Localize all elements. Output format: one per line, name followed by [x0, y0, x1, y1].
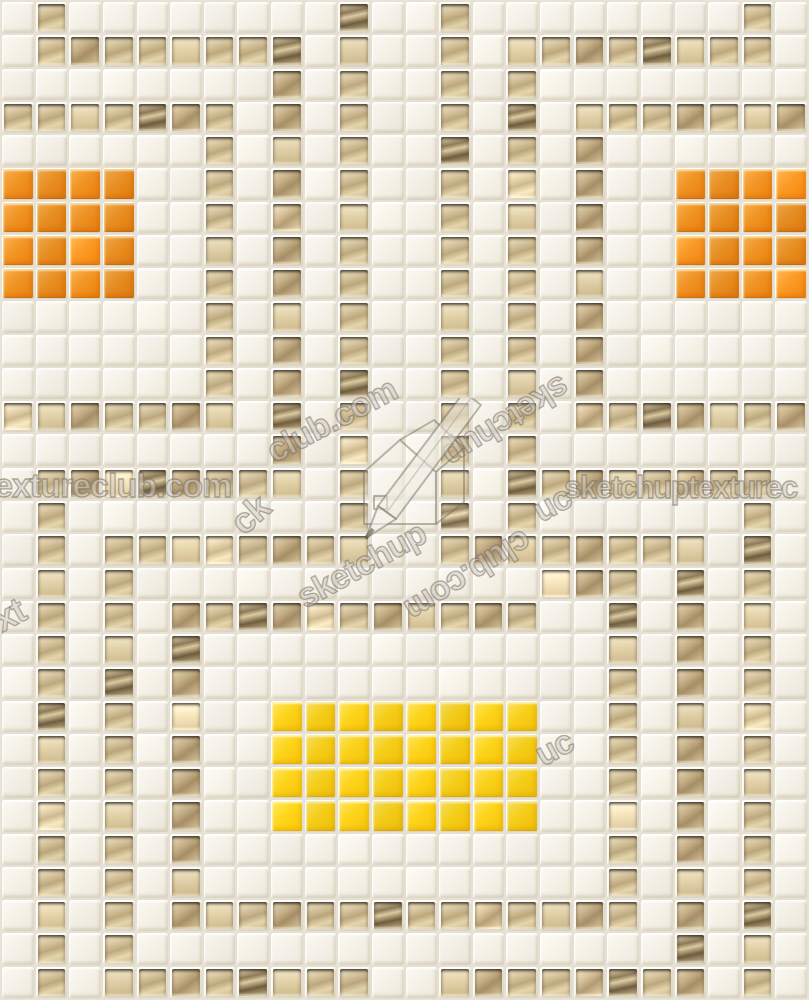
- tile-gold-metallic: [338, 69, 370, 100]
- tile-white: [641, 568, 673, 599]
- tile-white: [540, 667, 572, 698]
- tile-white: [2, 834, 34, 865]
- tile-gold-metallic: [540, 568, 572, 599]
- tile-gold-metallic: [675, 534, 707, 565]
- tile-white: [372, 135, 404, 166]
- tile-gold-metallic: [137, 967, 169, 998]
- tile-orange: [708, 268, 740, 299]
- tile-white: [170, 434, 202, 465]
- tile-white: [708, 434, 740, 465]
- tile-gold-metallic: [439, 967, 471, 998]
- tile-white: [2, 767, 34, 798]
- tile-gold-metallic: [103, 601, 135, 632]
- tile-gold-metallic: [103, 35, 135, 66]
- tile-gold-metallic: [271, 900, 303, 931]
- tile-white: [775, 834, 807, 865]
- tile-gold-metallic: [540, 967, 572, 998]
- tile-gold-metallic: [439, 102, 471, 133]
- tile-white: [305, 69, 337, 100]
- tile-gold-metallic: [170, 401, 202, 432]
- tile-orange: [675, 202, 707, 233]
- tile-white: [36, 135, 68, 166]
- tile-orange: [708, 202, 740, 233]
- tile-white: [69, 368, 101, 399]
- tile-gold-metallic: [2, 102, 34, 133]
- tile-white: [506, 834, 538, 865]
- tile-orange: [103, 268, 135, 299]
- tile-white: [372, 202, 404, 233]
- tile-yellow: [372, 701, 404, 732]
- tile-white: [607, 2, 639, 33]
- tile-gold-metallic: [204, 368, 236, 399]
- tile-white: [473, 2, 505, 33]
- tile-white: [641, 701, 673, 732]
- tile-gold-metallic: [675, 601, 707, 632]
- tile-gold-metallic: [338, 268, 370, 299]
- tile-orange: [36, 268, 68, 299]
- tile-white: [574, 800, 606, 831]
- tile-white: [675, 301, 707, 332]
- tile-white: [406, 301, 438, 332]
- tile-white: [137, 667, 169, 698]
- tile-gold-metallic: [271, 69, 303, 100]
- tile-gold-metallic: [540, 534, 572, 565]
- tile-gold-metallic: [36, 501, 68, 532]
- tile-white: [372, 534, 404, 565]
- tile-yellow: [271, 767, 303, 798]
- tile-white: [406, 102, 438, 133]
- tile-white: [305, 135, 337, 166]
- tile-yellow: [372, 734, 404, 765]
- tile-white: [237, 202, 269, 233]
- tile-gold-metallic: [775, 401, 807, 432]
- tile-gold-metallic: [574, 335, 606, 366]
- tile-gold-metallic: [439, 501, 471, 532]
- tile-white: [540, 933, 572, 964]
- tile-gold-metallic: [372, 601, 404, 632]
- tile-white: [204, 867, 236, 898]
- tile-gold-metallic: [36, 867, 68, 898]
- tile-white: [137, 867, 169, 898]
- tile-white: [775, 734, 807, 765]
- tile-white: [271, 634, 303, 665]
- tile-white: [170, 568, 202, 599]
- tile-gold-metallic: [607, 967, 639, 998]
- tile-gold-metallic: [338, 967, 370, 998]
- tile-gold-metallic: [742, 967, 774, 998]
- tile-gold-metallic: [574, 168, 606, 199]
- tile-white: [775, 69, 807, 100]
- tile-gold-metallic: [506, 434, 538, 465]
- tile-white: [36, 368, 68, 399]
- tile-white: [69, 534, 101, 565]
- tile-white: [439, 634, 471, 665]
- tile-white: [641, 634, 673, 665]
- tile-white: [137, 335, 169, 366]
- tile-yellow: [506, 734, 538, 765]
- tile-gold-metallic: [406, 900, 438, 931]
- tile-white: [237, 501, 269, 532]
- tile-white: [137, 900, 169, 931]
- tile-white: [641, 601, 673, 632]
- tile-white: [574, 501, 606, 532]
- tile-gold-metallic: [170, 701, 202, 732]
- tile-gold-metallic: [439, 401, 471, 432]
- tile-gold-metallic: [372, 900, 404, 931]
- tile-white: [675, 501, 707, 532]
- tile-gold-metallic: [271, 135, 303, 166]
- tile-orange: [2, 268, 34, 299]
- tile-white: [305, 568, 337, 599]
- tile-white: [2, 35, 34, 66]
- tile-gold-metallic: [36, 967, 68, 998]
- tile-white: [137, 933, 169, 964]
- tile-yellow: [406, 734, 438, 765]
- tile-white: [607, 301, 639, 332]
- tile-white: [372, 568, 404, 599]
- tile-gold-metallic: [36, 634, 68, 665]
- tile-gold-metallic: [742, 601, 774, 632]
- tile-gold-metallic: [675, 568, 707, 599]
- tile-gold-metallic: [36, 734, 68, 765]
- tile-white: [641, 202, 673, 233]
- tile-gold-metallic: [338, 35, 370, 66]
- tile-gold-metallic: [473, 534, 505, 565]
- tile-white: [742, 434, 774, 465]
- tile-white: [540, 701, 572, 732]
- tile-white: [69, 568, 101, 599]
- tile-white: [406, 168, 438, 199]
- tile-gold-metallic: [237, 601, 269, 632]
- tile-white: [69, 667, 101, 698]
- tile-white: [574, 634, 606, 665]
- tile-white: [237, 102, 269, 133]
- tile-white: [540, 301, 572, 332]
- tile-white: [641, 168, 673, 199]
- tile-white: [473, 235, 505, 266]
- tile-gold-metallic: [439, 202, 471, 233]
- tile-yellow: [473, 701, 505, 732]
- tile-white: [305, 301, 337, 332]
- tile-white: [2, 900, 34, 931]
- tile-yellow: [439, 734, 471, 765]
- tile-white: [305, 368, 337, 399]
- tile-yellow: [305, 800, 337, 831]
- tile-gold-metallic: [506, 202, 538, 233]
- tile-white: [36, 69, 68, 100]
- tile-gold-metallic: [540, 900, 572, 931]
- tile-gold-metallic: [170, 767, 202, 798]
- tile-white: [271, 568, 303, 599]
- tile-gold-metallic: [305, 534, 337, 565]
- tile-white: [305, 667, 337, 698]
- tile-white: [708, 701, 740, 732]
- tile-white: [69, 800, 101, 831]
- tile-white: [170, 69, 202, 100]
- tile-white: [237, 401, 269, 432]
- tile-yellow: [506, 800, 538, 831]
- tile-gold-metallic: [607, 634, 639, 665]
- tile-gold-metallic: [237, 534, 269, 565]
- tile-gold-metallic: [506, 102, 538, 133]
- tile-white: [372, 368, 404, 399]
- tile-gold-metallic: [742, 468, 774, 499]
- tile-white: [69, 335, 101, 366]
- tile-white: [775, 967, 807, 998]
- tile-white: [506, 568, 538, 599]
- tile-white: [204, 634, 236, 665]
- tile-gold-metallic: [742, 401, 774, 432]
- tile-white: [708, 135, 740, 166]
- tile-white: [69, 301, 101, 332]
- tile-gold-metallic: [271, 534, 303, 565]
- tile-gold-metallic: [137, 401, 169, 432]
- tile-white: [137, 568, 169, 599]
- tile-white: [372, 35, 404, 66]
- tile-yellow: [439, 701, 471, 732]
- tile-white: [271, 667, 303, 698]
- tile-white: [775, 468, 807, 499]
- tile-white: [69, 834, 101, 865]
- tile-gold-metallic: [675, 767, 707, 798]
- tile-yellow: [439, 800, 471, 831]
- tile-white: [237, 634, 269, 665]
- tile-white: [69, 2, 101, 33]
- tile-white: [237, 734, 269, 765]
- tile-gold-metallic: [36, 401, 68, 432]
- tile-gold-metallic: [204, 35, 236, 66]
- tile-gold-metallic: [607, 401, 639, 432]
- tile-gold-metallic: [439, 135, 471, 166]
- tile-white: [406, 667, 438, 698]
- tile-white: [237, 368, 269, 399]
- tile-white: [607, 434, 639, 465]
- tile-white: [36, 335, 68, 366]
- tile-white: [69, 601, 101, 632]
- tile-gold-metallic: [506, 368, 538, 399]
- tile-white: [675, 368, 707, 399]
- tile-orange: [708, 235, 740, 266]
- tile-white: [372, 268, 404, 299]
- tile-gold-metallic: [439, 468, 471, 499]
- tile-white: [708, 335, 740, 366]
- tile-white: [36, 301, 68, 332]
- tile-gold-metallic: [775, 102, 807, 133]
- tile-gold-metallic: [675, 867, 707, 898]
- tile-white: [2, 667, 34, 698]
- tile-white: [237, 168, 269, 199]
- tile-white: [170, 368, 202, 399]
- tile-gold-metallic: [36, 800, 68, 831]
- tile-gold-metallic: [607, 601, 639, 632]
- tile-white: [439, 867, 471, 898]
- tile-white: [406, 202, 438, 233]
- tile-gold-metallic: [338, 368, 370, 399]
- tile-white: [204, 767, 236, 798]
- tile-white: [742, 301, 774, 332]
- tile-white: [641, 235, 673, 266]
- tile-gold-metallic: [675, 401, 707, 432]
- tile-white: [406, 368, 438, 399]
- tile-white: [708, 634, 740, 665]
- tile-white: [574, 69, 606, 100]
- tile-gold-metallic: [338, 168, 370, 199]
- tile-white: [170, 933, 202, 964]
- tile-gold-metallic: [36, 601, 68, 632]
- tile-white: [607, 168, 639, 199]
- tile-orange: [69, 202, 101, 233]
- tile-orange: [2, 235, 34, 266]
- tile-white: [540, 368, 572, 399]
- tile-white: [103, 301, 135, 332]
- tile-white: [271, 867, 303, 898]
- tile-gold-metallic: [439, 2, 471, 33]
- tile-orange: [103, 168, 135, 199]
- tile-white: [103, 135, 135, 166]
- tile-gold-metallic: [641, 102, 673, 133]
- tile-gold-metallic: [204, 202, 236, 233]
- tile-white: [406, 268, 438, 299]
- tile-gold-metallic: [675, 102, 707, 133]
- tile-gold-metallic: [675, 900, 707, 931]
- tile-gold-metallic: [607, 35, 639, 66]
- tile-white: [708, 734, 740, 765]
- tile-gold-metallic: [204, 268, 236, 299]
- tile-white: [540, 800, 572, 831]
- tile-white: [137, 301, 169, 332]
- tile-white: [675, 69, 707, 100]
- tile-gold-metallic: [675, 834, 707, 865]
- tile-gold-metallic: [607, 102, 639, 133]
- tile-white: [641, 933, 673, 964]
- tile-white: [338, 667, 370, 698]
- tile-gold-metallic: [506, 35, 538, 66]
- tile-gold-metallic: [338, 434, 370, 465]
- tile-gold-metallic: [742, 667, 774, 698]
- tile-white: [372, 69, 404, 100]
- tile-gold-metallic: [237, 967, 269, 998]
- tile-white: [775, 701, 807, 732]
- tile-white: [708, 667, 740, 698]
- tile-white: [2, 534, 34, 565]
- tile-gold-metallic: [204, 301, 236, 332]
- tile-gold-metallic: [742, 834, 774, 865]
- tile-white: [708, 867, 740, 898]
- tile-white: [574, 601, 606, 632]
- tile-orange: [103, 235, 135, 266]
- tile-white: [641, 2, 673, 33]
- tile-white: [170, 335, 202, 366]
- tile-white: [69, 69, 101, 100]
- tile-white: [338, 933, 370, 964]
- tile-white: [708, 601, 740, 632]
- tile-gold-metallic: [170, 634, 202, 665]
- tile-white: [204, 501, 236, 532]
- tile-gold-metallic: [103, 967, 135, 998]
- tile-gold-metallic: [574, 235, 606, 266]
- tile-white: [473, 434, 505, 465]
- tile-gold-metallic: [204, 102, 236, 133]
- tile-white: [237, 69, 269, 100]
- tile-white: [2, 601, 34, 632]
- tile-yellow: [338, 701, 370, 732]
- tile-gold-metallic: [103, 468, 135, 499]
- tile-gold-metallic: [338, 235, 370, 266]
- tile-yellow: [271, 701, 303, 732]
- tile-white: [540, 2, 572, 33]
- tile-yellow: [305, 701, 337, 732]
- tile-gold-metallic: [69, 468, 101, 499]
- tile-white: [607, 202, 639, 233]
- tile-white: [775, 35, 807, 66]
- tile-gold-metallic: [36, 534, 68, 565]
- tile-white: [237, 834, 269, 865]
- tile-gold-metallic: [540, 468, 572, 499]
- tile-white: [137, 135, 169, 166]
- tile-gold-metallic: [170, 601, 202, 632]
- tile-white: [271, 834, 303, 865]
- tile-gold-metallic: [506, 468, 538, 499]
- tile-white: [204, 434, 236, 465]
- tile-gold-metallic: [170, 734, 202, 765]
- tile-gold-metallic: [574, 967, 606, 998]
- tile-white: [473, 834, 505, 865]
- tile-white: [69, 135, 101, 166]
- tile-gold-metallic: [36, 767, 68, 798]
- tile-white: [607, 368, 639, 399]
- tile-gold-metallic: [103, 900, 135, 931]
- tile-white: [574, 867, 606, 898]
- tile-white: [708, 368, 740, 399]
- tile-white: [574, 767, 606, 798]
- tile-gold-metallic: [574, 401, 606, 432]
- tile-gold-metallic: [641, 401, 673, 432]
- tile-orange: [708, 168, 740, 199]
- tile-gold-metallic: [137, 35, 169, 66]
- tile-gold-metallic: [170, 35, 202, 66]
- tile-white: [406, 867, 438, 898]
- tile-gold-metallic: [742, 35, 774, 66]
- tile-gold-metallic: [271, 468, 303, 499]
- tile-white: [439, 834, 471, 865]
- tile-white: [137, 501, 169, 532]
- tile-white: [103, 2, 135, 33]
- tile-white: [775, 767, 807, 798]
- tile-gold-metallic: [338, 2, 370, 33]
- tile-gold-metallic: [675, 967, 707, 998]
- tile-white: [607, 135, 639, 166]
- tile-yellow: [372, 767, 404, 798]
- tile-gold-metallic: [170, 800, 202, 831]
- tile-yellow: [305, 767, 337, 798]
- tile-white: [641, 268, 673, 299]
- tile-gold-metallic: [742, 534, 774, 565]
- tile-gold-metallic: [506, 135, 538, 166]
- tile-gold-metallic: [574, 301, 606, 332]
- tile-white: [305, 35, 337, 66]
- tile-gold-metallic: [641, 468, 673, 499]
- tile-gold-metallic: [69, 35, 101, 66]
- tile-gold-metallic: [170, 102, 202, 133]
- tile-gold-metallic: [742, 501, 774, 532]
- tile-gold-metallic: [607, 734, 639, 765]
- tile-white: [69, 867, 101, 898]
- tile-gold-metallic: [271, 235, 303, 266]
- tile-gold-metallic: [36, 102, 68, 133]
- tile-white: [708, 301, 740, 332]
- tile-white: [103, 69, 135, 100]
- tile-white: [439, 667, 471, 698]
